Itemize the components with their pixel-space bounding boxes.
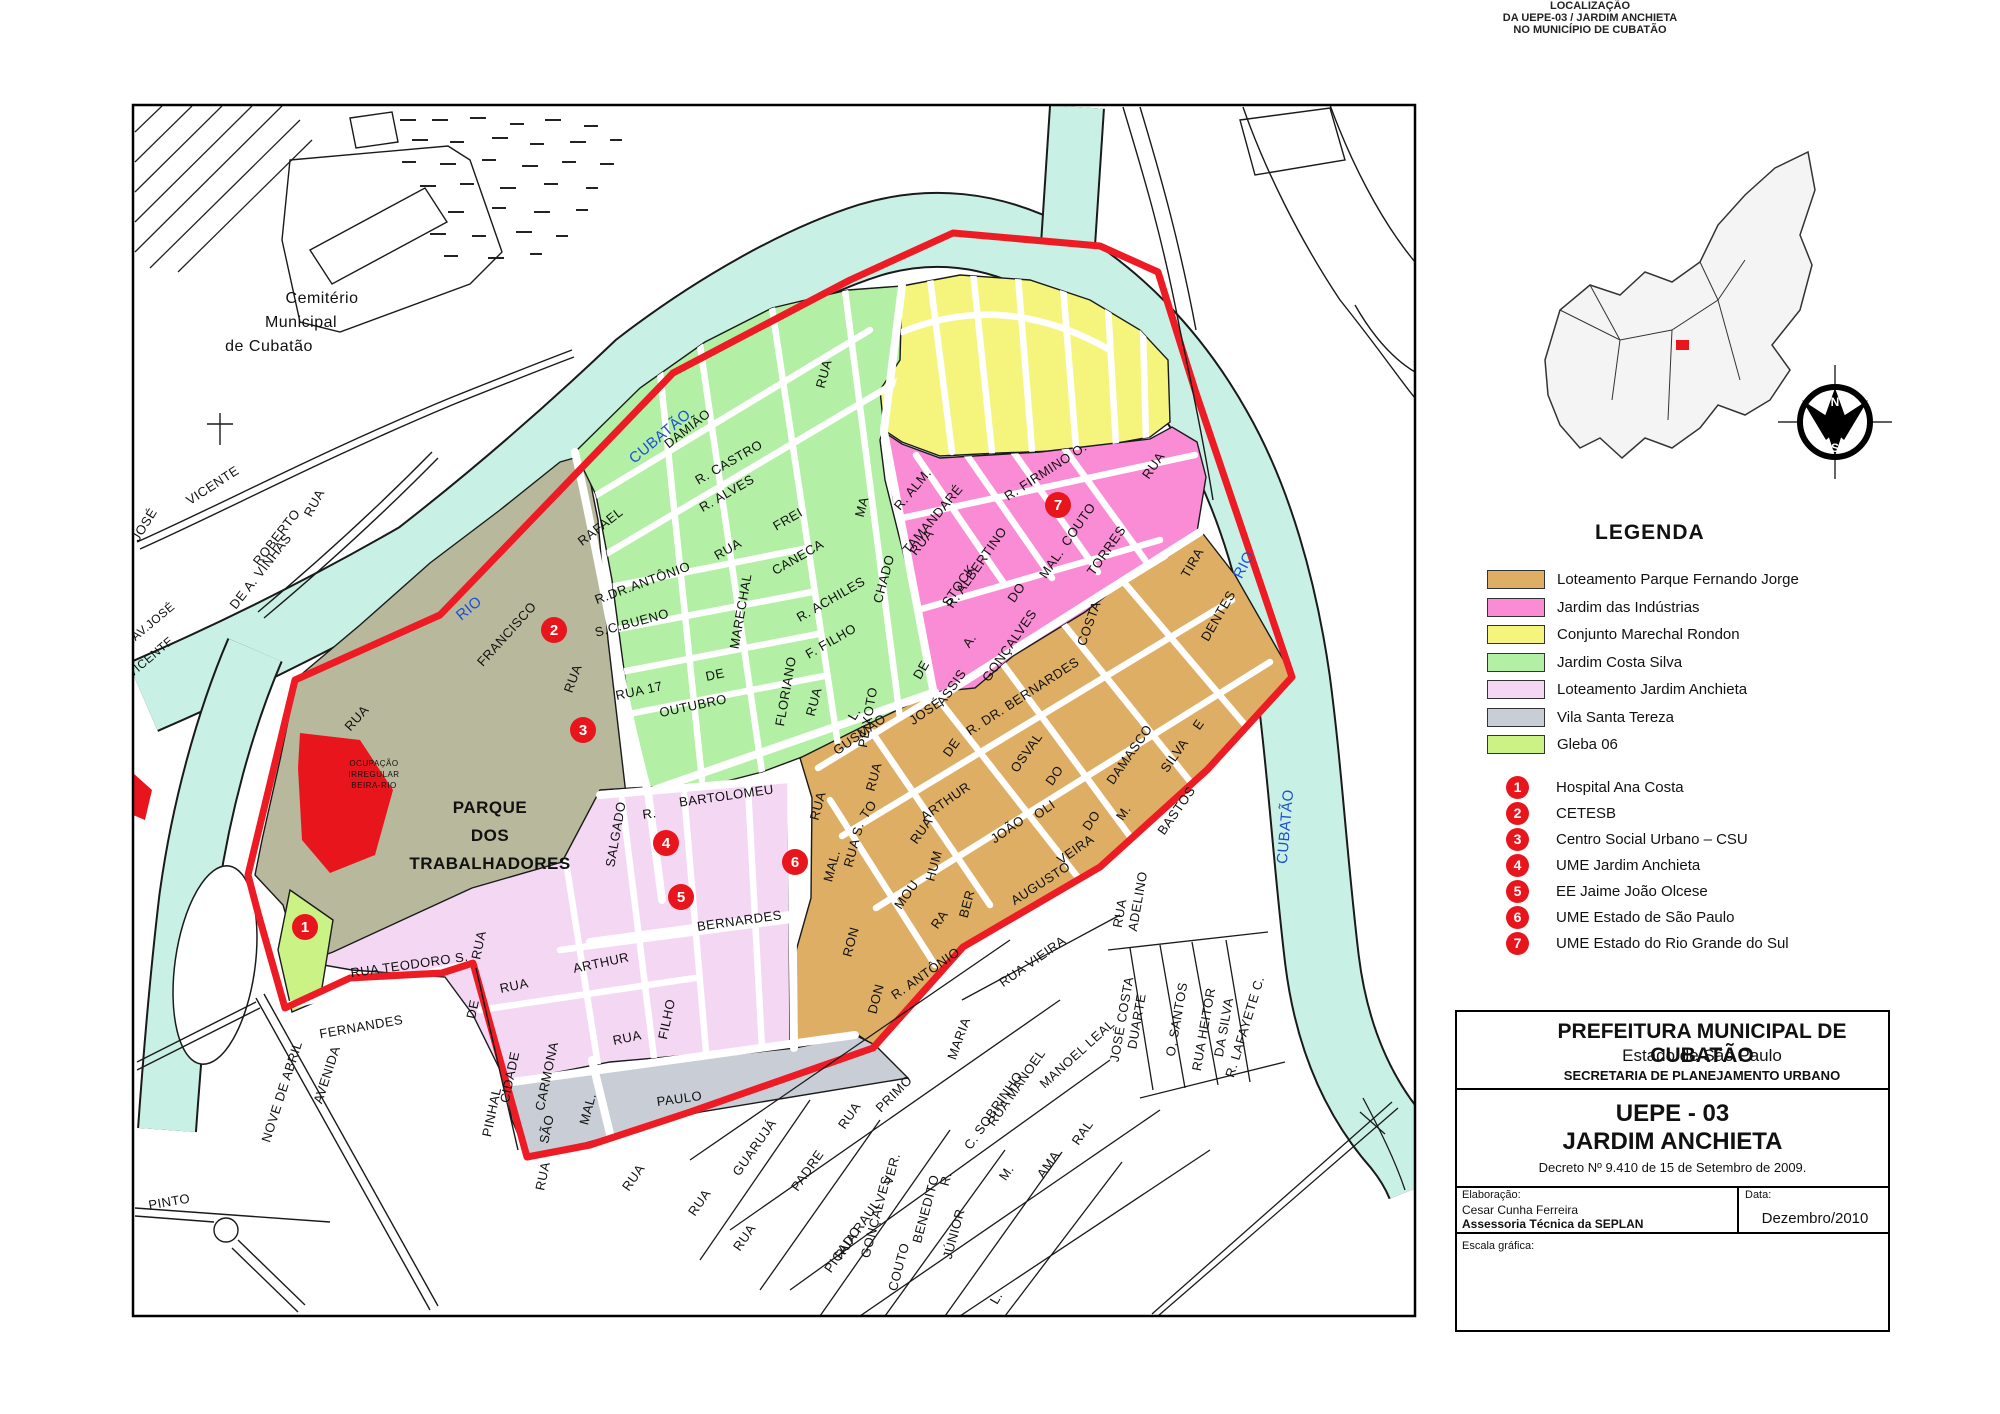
map-label: O. SANTOS [1163, 981, 1191, 1058]
poi-label: Hospital Ana Costa [1556, 779, 1684, 796]
legend-swatch [1487, 598, 1545, 617]
map-label: MANOEL LEAL [1037, 1016, 1118, 1091]
legend-label: Loteamento Parque Fernando Jorge [1557, 571, 1799, 588]
map-label: MARIA [944, 1015, 973, 1061]
map-label: NOVE DE ABRIL [258, 1039, 305, 1144]
map-label: BEIRA-RIO [351, 781, 396, 790]
date-label: Data: [1745, 1189, 1771, 1201]
svg-text:S: S [1831, 441, 1839, 455]
map-label: Municipal [265, 314, 337, 331]
legend-label: Conjunto Marechal Rondon [1557, 626, 1740, 643]
map-label: GUARUJÁ [729, 1116, 779, 1178]
map-label: RUA [685, 1186, 714, 1218]
poi-number-badge: 3 [1506, 828, 1529, 851]
svg-text:L: L [1857, 419, 1863, 430]
map-label: RAL [1068, 1117, 1096, 1148]
map-label: RUA [619, 1161, 648, 1193]
legend-heading: LEGENDA [1595, 521, 1705, 545]
map-label: R. [937, 1170, 955, 1187]
map-label: RUA [835, 1099, 864, 1131]
svg-text:4: 4 [662, 835, 671, 852]
map-label: PINTO [147, 1191, 191, 1213]
legend-label: Vila Santa Tereza [1557, 709, 1674, 726]
legend-label: Gleba 06 [1557, 736, 1618, 753]
sheet-code: UEPE - 03 [1457, 1100, 1888, 1128]
poi-label: UME Estado do Rio Grande do Sul [1556, 935, 1789, 952]
author-name: Cesar Cunha Ferreira [1462, 1203, 1578, 1217]
map-label: RUA [532, 1160, 553, 1191]
scale-label: Escala gráfica: [1462, 1240, 1534, 1252]
map-label: M. [996, 1162, 1017, 1183]
org-state: Estado de São Paulo [1517, 1046, 1887, 1066]
svg-text:2: 2 [550, 622, 558, 639]
legend-swatch [1487, 653, 1545, 672]
poi-number-badge: 1 [1506, 776, 1529, 799]
map-label: R. [641, 805, 657, 822]
map-label: AMA [1034, 1148, 1063, 1181]
svg-text:7: 7 [1054, 497, 1062, 514]
poi-label: Centro Social Urbano – CSU [1556, 831, 1748, 848]
locator-title-line2: DA UEPE-03 / JARDIM ANCHIETA [1370, 12, 1810, 24]
svg-text:3: 3 [579, 722, 587, 739]
locator-highlight [1676, 340, 1689, 350]
date-value: Dezembro/2010 [1745, 1210, 1885, 1227]
locator-title-line1: LOCALIZAÇÃO [1370, 0, 1810, 12]
legend-label: Jardim Costa Silva [1557, 654, 1682, 671]
map-label: PICADO [821, 1223, 864, 1275]
map-label: VICENTE [183, 463, 241, 508]
title-block: PREFEITURA MUNICIPAL DE CUBATÃO Estado d… [1455, 1010, 1890, 1332]
poi-number-badge: 6 [1506, 906, 1529, 929]
map-label: TRABALHADORES [409, 854, 570, 873]
svg-text:O: O [1806, 419, 1814, 430]
svg-text:5: 5 [677, 889, 685, 906]
sheet-name: JARDIM ANCHIETA [1457, 1128, 1888, 1156]
locator-title: LOCALIZAÇÃO DA UEPE-03 / JARDIM ANCHIETA… [1370, 0, 1810, 36]
legend-swatch [1487, 680, 1545, 699]
map-label: OCUPAÇÃO [349, 759, 398, 768]
poi-label: UME Estado de São Paulo [1556, 909, 1734, 926]
map-label: Cemitério [286, 290, 359, 307]
map-label: PADRE [788, 1147, 827, 1194]
map-label: PINHAL [479, 1086, 504, 1138]
map-label: de Cubatão [225, 338, 313, 355]
legend-swatch [1487, 735, 1545, 754]
poi-number-badge: 2 [1506, 802, 1529, 825]
poi-label: EE Jaime João Olcese [1556, 883, 1708, 900]
map-label: L. [987, 1289, 1006, 1307]
locator-map [1545, 152, 1815, 458]
hatch-area [135, 106, 312, 272]
map-label: AVENIDA [310, 1044, 343, 1105]
svg-text:6: 6 [791, 854, 799, 871]
legend-swatch [1487, 625, 1545, 644]
poi-label: UME Jardim Anchieta [1556, 857, 1700, 874]
compass-icon: N S O L [1778, 365, 1892, 479]
map-label: PARQUE [453, 798, 527, 817]
map-label: RUA [730, 1221, 759, 1253]
poi-number-badge: 5 [1506, 880, 1529, 903]
map-sheet: CemitérioMunicipalde CubatãoJOSÉVICENTER… [0, 0, 2000, 1414]
svg-text:N: N [1831, 395, 1840, 409]
legend-label: Jardim das Indústrias [1557, 599, 1700, 616]
poi-label: CETESB [1556, 805, 1616, 822]
legend-swatch [1487, 708, 1545, 727]
locator-title-line3: NO MUNICÍPIO DE CUBATÃO [1370, 24, 1810, 36]
legend-swatch [1487, 570, 1545, 589]
legend-label: Loteamento Jardim Anchieta [1557, 681, 1747, 698]
elaboration-label: Elaboração: [1462, 1189, 1521, 1201]
map-label: DOS [471, 826, 509, 845]
marsh-dashes [400, 118, 622, 258]
map-label: IRREGULAR [348, 770, 399, 779]
team-name: Assessoria Técnica da SEPLAN [1462, 1217, 1643, 1231]
map-label: C. SOBRINHO [961, 1069, 1026, 1153]
decree-text: Decreto Nº 9.410 de 15 de Setembro de 20… [1457, 1160, 1888, 1175]
map-label: FERNANDES [318, 1012, 404, 1041]
svg-text:1: 1 [301, 919, 309, 936]
org-dept: SECRETARIA DE PLANEJAMENTO URBANO [1517, 1068, 1887, 1083]
map-label: RUA [301, 487, 328, 520]
poi-number-badge: 7 [1506, 932, 1529, 955]
poi-number-badge: 4 [1506, 854, 1529, 877]
